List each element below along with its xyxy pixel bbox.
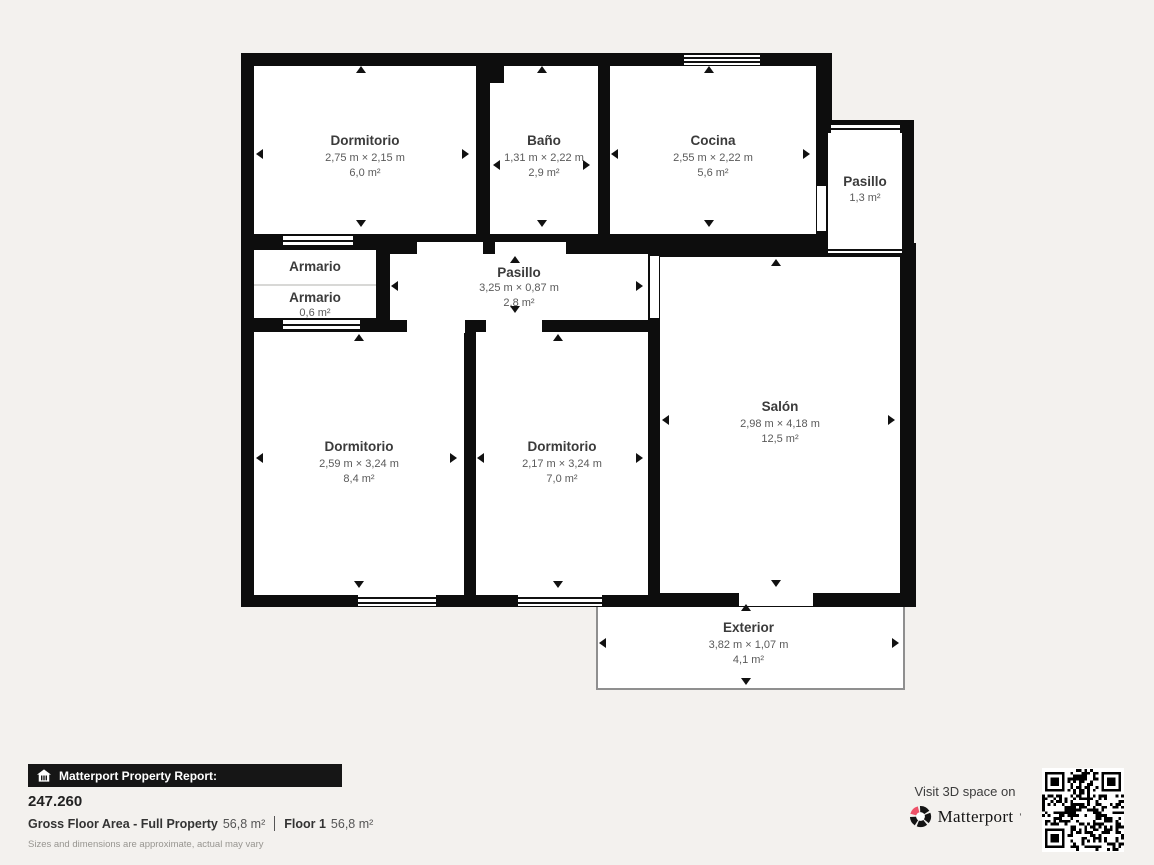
gfa-value: 56,8 m² [223,817,265,831]
label-salon: Salón 2,98 m × 4,18 m 12,5 m² [660,399,900,446]
visit-3d-promo: Visit 3D space on Matterport’ [898,784,1032,828]
label-pasillo-right: Pasillo 1,3 m² [824,174,906,206]
floor-value: 56,8 m² [331,817,373,831]
door-pasillo-to-dormitorio-bc [486,320,542,333]
measure-arrow-down-icon [537,220,547,227]
measure-arrow-down-icon [553,581,563,588]
gross-floor-area-line: Gross Floor Area - Full Property 56,8 m²… [28,816,373,831]
room-dimensions: 2,59 m × 3,24 m [254,458,464,472]
measure-arrow-up-icon [510,256,520,263]
property-report-page: Dormitorio 2,75 m × 2,15 m 6,0 m² Baño 1… [0,0,1154,865]
room-name: Pasillo [390,265,648,282]
room-area: 1,3 m² [824,192,906,206]
label-bano: Baño 1,31 m × 2,22 m 2,9 m² [488,133,600,180]
room-area: 12,5 m² [660,433,900,447]
room-area: 0,6 m² [254,307,376,321]
measure-arrow-right-icon [892,638,899,648]
measure-arrow-up-icon [553,334,563,341]
measure-arrow-up-icon [771,259,781,266]
measure-arrow-right-icon [583,160,590,170]
measure-arrow-down-icon [356,220,366,227]
room-area: 8,4 m² [254,473,464,487]
room-dimensions: 3,25 m × 0,87 m [390,282,648,296]
room-area: 7,0 m² [476,473,648,487]
window-pasillo-right-bottom [828,246,902,253]
armario-divider [254,284,376,286]
room-name: Exterior [596,620,901,637]
house-icon [37,769,51,782]
room-name: Dormitorio [254,439,464,456]
matterport-wordmark: Matterport [938,807,1014,827]
room-name: Pasillo [824,174,906,191]
measure-arrow-down-icon [704,220,714,227]
measure-arrow-down-icon [771,580,781,587]
measure-arrow-up-icon [537,66,547,73]
label-dormitorio-bottom-left: Dormitorio 2,59 m × 3,24 m 8,4 m² [254,439,464,486]
matterport-logo: Matterport’ [898,805,1032,828]
label-armario-bottom: Armario 0,6 m² [254,290,376,321]
door-pasillo-to-dormitorio-tl [417,242,483,254]
measure-arrow-right-icon [462,149,469,159]
measure-arrow-down-icon [741,678,751,685]
qr-code [1042,768,1124,852]
door-pasillo-to-dormitorio-bl [407,320,465,333]
room-dimensions: 2,55 m × 2,22 m [610,152,816,166]
measure-arrow-right-icon [636,281,643,291]
label-dormitorio-bottom-center: Dormitorio 2,17 m × 3,24 m 7,0 m² [476,439,648,486]
disclaimer-text: Sizes and dimensions are approximate, ac… [28,839,264,850]
measure-arrow-up-icon [741,604,751,611]
divider [274,816,275,831]
measure-arrow-up-icon [356,66,366,73]
bano-wall-notch [490,66,504,83]
measure-arrow-left-icon [391,281,398,291]
room-name: Dormitorio [476,439,648,456]
measure-arrow-left-icon [477,453,484,463]
room-area: 4,1 m² [596,654,901,668]
trademark-mark: ’ [1019,812,1021,822]
room-name: Salón [660,399,900,416]
gfa-label: Gross Floor Area - Full Property [28,817,218,831]
window-dormitorio-bl-top [283,320,360,329]
measure-arrow-right-icon [636,453,643,463]
room-name: Cocina [610,133,816,150]
matterport-pinwheel-icon [909,805,932,828]
room-name: Baño [488,133,600,150]
measure-arrow-left-icon [493,160,500,170]
room-dimensions: 2,98 m × 4,18 m [660,418,900,432]
room-name: Dormitorio [254,133,476,150]
door-pasillo-to-bano [495,242,566,254]
measure-arrow-up-icon [704,66,714,73]
measure-arrow-down-icon [354,581,364,588]
label-pasillo-center: Pasillo 3,25 m × 0,87 m 2,8 m² [390,265,648,310]
floor-label: Floor 1 [284,817,326,831]
visit-3d-text: Visit 3D space on [898,784,1032,799]
door-pasillo-to-salon [650,256,659,318]
window-dormitorio-tl-bottom [283,236,353,245]
room-dimensions: 2,17 m × 3,24 m [476,458,648,472]
measure-arrow-left-icon [611,149,618,159]
label-armario-top: Armario [254,259,376,276]
window-dormitorio-bc-bottom [518,595,602,606]
report-bar-title: Matterport Property Report: [59,769,217,783]
measure-arrow-right-icon [803,149,810,159]
window-pasillo-right-top [831,125,900,133]
room-name: Armario [254,290,376,307]
room-dimensions: 3,82 m × 1,07 m [596,639,901,653]
measure-arrow-right-icon [450,453,457,463]
window-cocina-top [684,55,760,65]
measure-arrow-up-icon [354,334,364,341]
measure-arrow-right-icon [888,415,895,425]
report-title-bar: Matterport Property Report: [28,764,342,787]
label-cocina: Cocina 2,55 m × 2,22 m 5,6 m² [610,133,816,180]
measure-arrow-left-icon [662,415,669,425]
room-area: 6,0 m² [254,167,476,181]
label-dormitorio-top-left: Dormitorio 2,75 m × 2,15 m 6,0 m² [254,133,476,180]
room-name: Armario [254,259,376,276]
measure-arrow-down-icon [510,306,520,313]
floor-plan: Dormitorio 2,75 m × 2,15 m 6,0 m² Baño 1… [0,0,1154,760]
measure-arrow-left-icon [599,638,606,648]
room-area: 5,6 m² [610,167,816,181]
room-dimensions: 2,75 m × 2,15 m [254,152,476,166]
reference-number: 247.260 [28,793,82,810]
measure-arrow-left-icon [256,453,263,463]
window-dormitorio-bl-bottom [358,595,436,606]
label-exterior: Exterior 3,82 m × 1,07 m 4,1 m² [596,620,901,667]
measure-arrow-left-icon [256,149,263,159]
